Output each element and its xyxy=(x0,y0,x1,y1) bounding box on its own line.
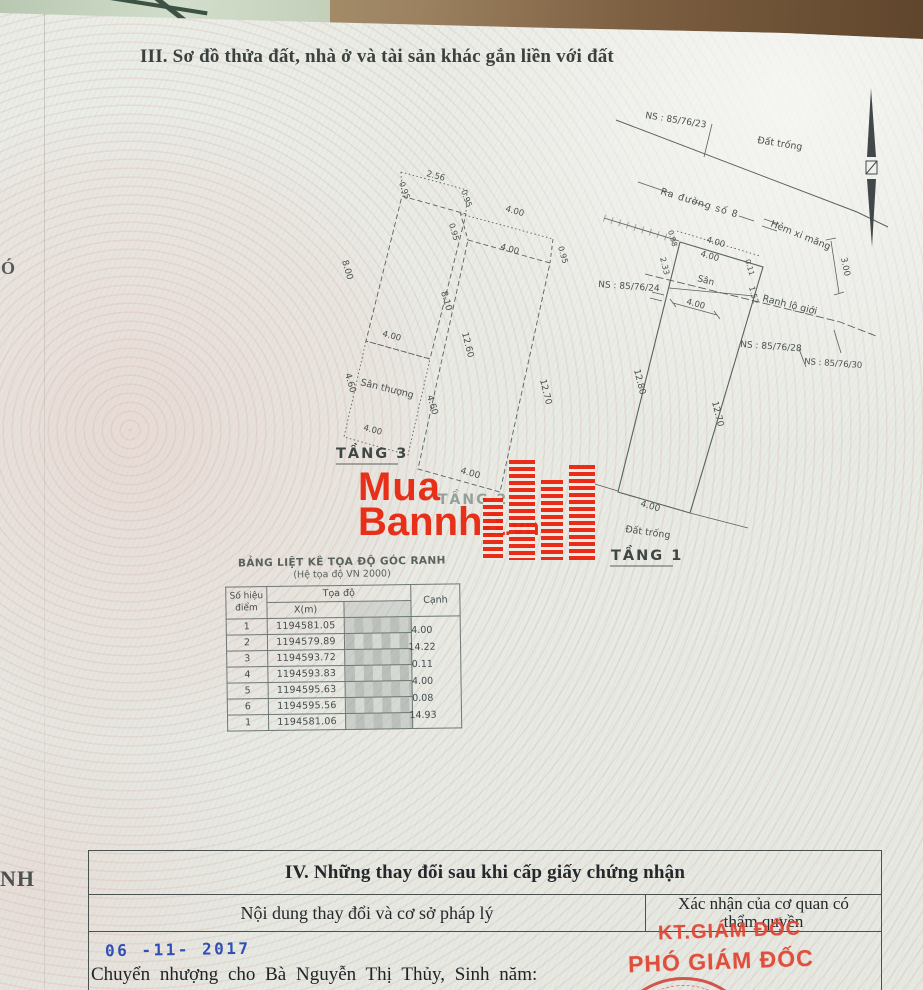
watermark-building-icon xyxy=(483,452,613,560)
f2-dim: 12.70 xyxy=(537,378,553,406)
edge-value: 4.00 xyxy=(400,676,444,688)
alley-width-dim: 3.00 xyxy=(838,257,852,278)
f2-dim: 0.95 xyxy=(556,245,570,265)
f3-dim: 4.60 xyxy=(342,372,357,394)
f2-dim: 0.95 xyxy=(447,222,461,242)
edge-value: 4.00 xyxy=(400,625,444,637)
ns30-label: NS : 85/76/30 xyxy=(804,357,863,371)
f2-dim: 4.00 xyxy=(504,204,525,219)
col-edge-header: Cạnh xyxy=(411,584,460,617)
transfer-entry-text: Chuyển nhượng cho Bà Nguyễn Thị Thủy, Si… xyxy=(91,964,537,986)
certificate-photo: III. Sơ đồ thửa đất, nhà ở và tài sản kh… xyxy=(0,0,923,990)
f3-dim: 4.60 xyxy=(424,394,439,416)
f1-dim: 2.33 xyxy=(658,256,671,275)
f1-dim: 4.00 xyxy=(639,499,661,514)
f3-dim: 4.00 xyxy=(381,329,402,344)
road-label: Ra đường số 8 xyxy=(659,186,740,220)
ns24-label: NS : 85/76/24 xyxy=(598,280,660,294)
f3-dim: 8.00 xyxy=(339,259,354,281)
f3-dim: 0.95 xyxy=(397,181,412,201)
edge-value: 0.08 xyxy=(401,693,445,705)
f3-dim: 2.56 xyxy=(425,169,446,184)
edge-value: 14.22 xyxy=(400,642,444,654)
floor1-label: TẦNG 1 xyxy=(611,545,683,564)
north-arrow-icon xyxy=(866,88,877,247)
f3-dim: 8.10 xyxy=(438,290,453,312)
coordinate-table-subtitle: (Hệ tọa độ VN 2000) xyxy=(217,567,467,581)
f3-dim: 4.00 xyxy=(362,423,383,438)
date-stamp: 06 -11- 2017 xyxy=(105,939,251,961)
alley-label: Hẻm xi măng xyxy=(769,219,832,253)
f1-dim: 0.11 xyxy=(743,258,756,277)
col-x-header: X(m) xyxy=(267,601,344,618)
empty-land-top-label: Đất trống xyxy=(757,135,804,153)
f1-dim: 12.80 xyxy=(631,368,647,396)
f1-dim: 4.00 xyxy=(685,297,706,312)
ns23-label: NS : 85/76/23 xyxy=(645,111,707,131)
f1-dim: 4.00 xyxy=(705,235,726,250)
col-y-header-redacted xyxy=(344,601,411,618)
boundary-label: Ranh lộ giới xyxy=(761,293,818,317)
f2-dim: 4.00 xyxy=(499,242,520,257)
floor3-label: TẦNG 3 xyxy=(336,443,408,462)
f3-terrace-label: Sân thượng xyxy=(359,377,415,401)
f1-dim: 4.00 xyxy=(699,249,720,264)
coordinate-table: BẢNG LIỆT KÊ TỌA ĐỘ GÓC RANH (Hệ tọa độ … xyxy=(217,554,469,731)
edge-value: 0.11 xyxy=(400,659,444,671)
change-content-header: Nội dung thay đổi và cơ sở pháp lý xyxy=(89,895,645,931)
f3-dim: 0.95 xyxy=(459,189,474,209)
f2-dim: 12.60 xyxy=(459,331,475,359)
col-point-header: Số hiệuđiểm xyxy=(226,587,267,620)
f1-dim: 0.08 xyxy=(666,229,679,248)
f1-dim: 1.52 xyxy=(747,285,760,304)
section-iv-title: IV. Những thay đổi sau khi cấp giấy chứn… xyxy=(89,851,881,894)
f1-yard-label: Sân xyxy=(696,274,715,288)
edge-value: 14.93 xyxy=(401,710,445,722)
ns28-label: NS : 85/76/28 xyxy=(740,340,802,354)
empty-land-bottom-label: Đất trống xyxy=(625,524,672,541)
